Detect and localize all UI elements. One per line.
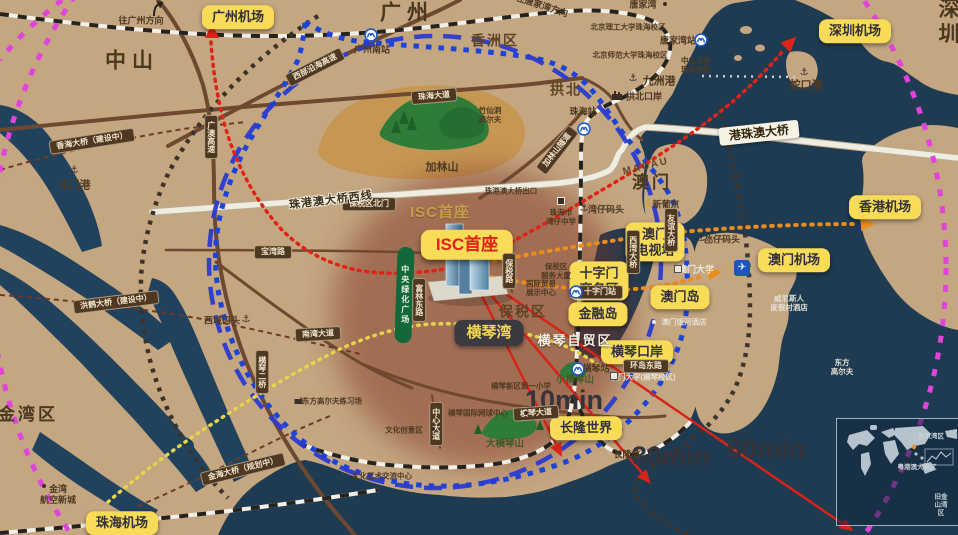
anchor-icon: ⚓ — [580, 204, 589, 214]
sign-baowan-road: 宝湾路 — [254, 245, 292, 259]
label-bit-campus: 北京理工大学珠海校区 — [591, 23, 666, 32]
label-dongfang-golf: 东方 高尔夫 — [831, 358, 854, 376]
label-zhuhai-airport: 珠海机场 — [86, 511, 158, 535]
label-golf-range: 东方高尔夫练习场 — [302, 397, 362, 406]
label-tangjiawan: 唐家湾 — [629, 0, 656, 10]
label-guangzhou: 广州 — [380, 0, 434, 25]
label-to-guangzhou: 往广州方向 — [118, 16, 163, 27]
label-xiangzhou: 香洲区 — [471, 33, 519, 50]
label-shekou-port: 蛇口港 — [790, 79, 823, 92]
school-square-icon — [557, 197, 565, 205]
sign-jinhai-bridge: 金海大桥（规划中） — [200, 452, 287, 486]
label-jinwan: 金湾区 — [0, 405, 58, 425]
airplane-icon: ✈ — [734, 260, 750, 276]
label-xiaohengqinshan: 小横琴山 — [556, 374, 594, 385]
label-wanzai-pier: 湾仔码头 — [588, 205, 624, 216]
label-bnu-campus: 北京师范大学珠海校区 — [593, 51, 668, 60]
sign-huandao-east-road: 环岛东路 — [623, 359, 669, 373]
label-hengqin-bay: 横琴湾 — [454, 320, 523, 346]
inset-label-gba: 粤港澳大湾区 — [898, 464, 937, 472]
label-zhuxiandong-golf: 竹仙洞 高尔夫 — [479, 106, 502, 124]
place-dot-icon — [524, 411, 528, 415]
label-jiuzhou-port: 九洲港 — [643, 75, 676, 88]
sign-xiwan-bridge: 西湾大桥 — [626, 230, 640, 274]
checkpoint-building-icon — [611, 90, 623, 100]
label-galaxy-hotel: 澳门银河酒店 — [662, 318, 707, 327]
label-venetian: 威尼斯人 度假村酒店 — [770, 294, 808, 312]
label-macau-cn: 澳门 — [632, 173, 672, 193]
anchor-icon: ⚓ — [70, 166, 79, 176]
label-zhongshan: 中山 — [105, 48, 159, 73]
label-um: 澳门大学 — [678, 265, 714, 276]
sign-jialinshan-tunnel: 加林山隧道 — [535, 125, 579, 176]
isc-logo: ISC首座 — [410, 204, 470, 222]
label-chimelong-world: 长隆世界 — [550, 416, 622, 440]
metro-icon — [569, 285, 583, 299]
label-shenzhen: 深圳 — [939, 0, 958, 47]
anchor-icon: ⚓ — [242, 315, 251, 325]
sign-youyi-bridge: 友谊大桥 — [664, 208, 678, 252]
label-xiyu-pier: 西域码头 — [204, 316, 240, 327]
sign-xianghai-bridge: 香海大桥（建设中） — [48, 128, 135, 155]
sign-guangao-expwy: 广澳高速 — [204, 115, 218, 159]
campus-square-icon — [610, 372, 618, 380]
metro-icon — [571, 362, 585, 376]
label-tangjiawan-station: 唐家湾站 — [660, 36, 696, 47]
label-zhuhai-station: 珠海站 — [569, 107, 596, 118]
label-sysu-campus: 中山大学 珠海校区 — [681, 56, 711, 74]
label-finance-island: 金融岛 — [568, 302, 627, 326]
label-baoshui-zone: 保税区 — [499, 304, 547, 321]
metro-icon — [577, 122, 591, 136]
anchor-icon: ⚓ — [800, 68, 809, 78]
label-guangzhounan-station: 广州南站 — [354, 45, 390, 56]
sign-zhongxin-avenue: 中心大道 — [429, 402, 443, 446]
label-60min: 60min — [727, 433, 805, 465]
label-hengqin-ftz: 横琴自贸区 — [537, 333, 612, 349]
label-gongbei: 拱北 — [550, 82, 582, 99]
sign-zhuhai-avenue: 珠海大道 — [410, 87, 457, 105]
sign-baoshui-road: 保税路 — [502, 253, 516, 289]
location-map: ISC首座 广州机场深圳机场香港机场澳门机场澳门 电视塔澳门岛十字门 商务区金融… — [0, 0, 958, 535]
sign-honghe-bridge: 洪鹤大桥（建设中） — [72, 290, 159, 314]
anchor-icon: ⚓ — [629, 74, 638, 84]
label-doumen-port: 斗门港 — [58, 179, 91, 192]
label-trade-center: 国际贸易 展示中心 — [526, 279, 556, 297]
place-dot-icon — [42, 484, 46, 488]
label-hongkong-airport: 香港机场 — [849, 195, 921, 219]
label-central-green-park: 中央绿化广场 — [400, 265, 410, 325]
label-shenzhen-airport: 深圳机场 — [819, 19, 891, 43]
metro-icon — [364, 28, 378, 42]
sign-xibu-expwy: 西部沿海高速 — [284, 47, 345, 87]
anchor-icon: ⚓ — [697, 234, 706, 244]
sign-hzmb: 港珠澳大桥 — [718, 120, 799, 147]
label-shizimen-station: 十字门站 — [577, 285, 623, 299]
label-gongbei-checkpoint: 拱北口岸 — [626, 92, 662, 103]
sign-nanwan-avenue: 南湾大道 — [295, 326, 342, 342]
label-bridge-exit: 珠港澳大桥出口 — [485, 187, 538, 196]
place-dot-icon — [652, 320, 656, 324]
tower-icon — [644, 195, 652, 208]
label-dahengqinshan: 大横琴山 — [486, 438, 524, 449]
metro-icon — [694, 33, 708, 47]
label-guangzhou-airport: 广州机场 — [202, 5, 274, 29]
label-30min: 30min — [632, 440, 710, 472]
place-dot-icon — [663, 2, 667, 6]
bent-arrow-icon — [151, 0, 165, 16]
label-wanzai-school: 珠海市 湾仔中学 — [546, 208, 576, 226]
inset-label-tokyo-bay: 东京湾区 — [918, 433, 944, 441]
label-macau-airport: 澳门机场 — [758, 248, 830, 272]
label-tennis-center: 横琴国际网球中心 — [448, 409, 508, 418]
label-layer: ISC首座 广州机场深圳机场香港机场澳门机场澳门 电视塔澳门岛十字门 商务区金融… — [0, 0, 958, 535]
sign-fulin-east-road: 富林东路 — [412, 278, 426, 322]
label-changlong-station: 长隆站 — [613, 450, 640, 461]
label-baoshui-building: 保税区 服务大厦 — [541, 262, 571, 280]
label-jialinshan: 加林山 — [426, 161, 459, 174]
sign-hengqin-2nd-bridge: 横琴二桥 — [255, 350, 269, 394]
inset-label-sf-bay: 旧金山湾区 — [933, 493, 950, 516]
label-macau-island: 澳门岛 — [650, 285, 709, 309]
label-art-center: 文化艺术交流中心 — [352, 472, 412, 481]
label-hengqin-station: 横琴站 — [582, 364, 609, 375]
golf-building-icon — [295, 396, 304, 404]
label-isc-project: ISC首座 — [421, 230, 513, 260]
label-hengqin-school: 横琴新区第一小学 — [491, 382, 551, 391]
label-um-hengqin: 澳门大学(横琴校区) — [611, 373, 676, 382]
label-to-tangjiawan: 往唐家湾方向 — [515, 0, 570, 19]
place-dot-icon — [431, 427, 435, 431]
campus-square-icon — [674, 265, 682, 273]
label-cultural-zone: 文化创意区 — [385, 426, 423, 435]
label-taipa-pier: 氹仔码头 — [704, 235, 740, 246]
